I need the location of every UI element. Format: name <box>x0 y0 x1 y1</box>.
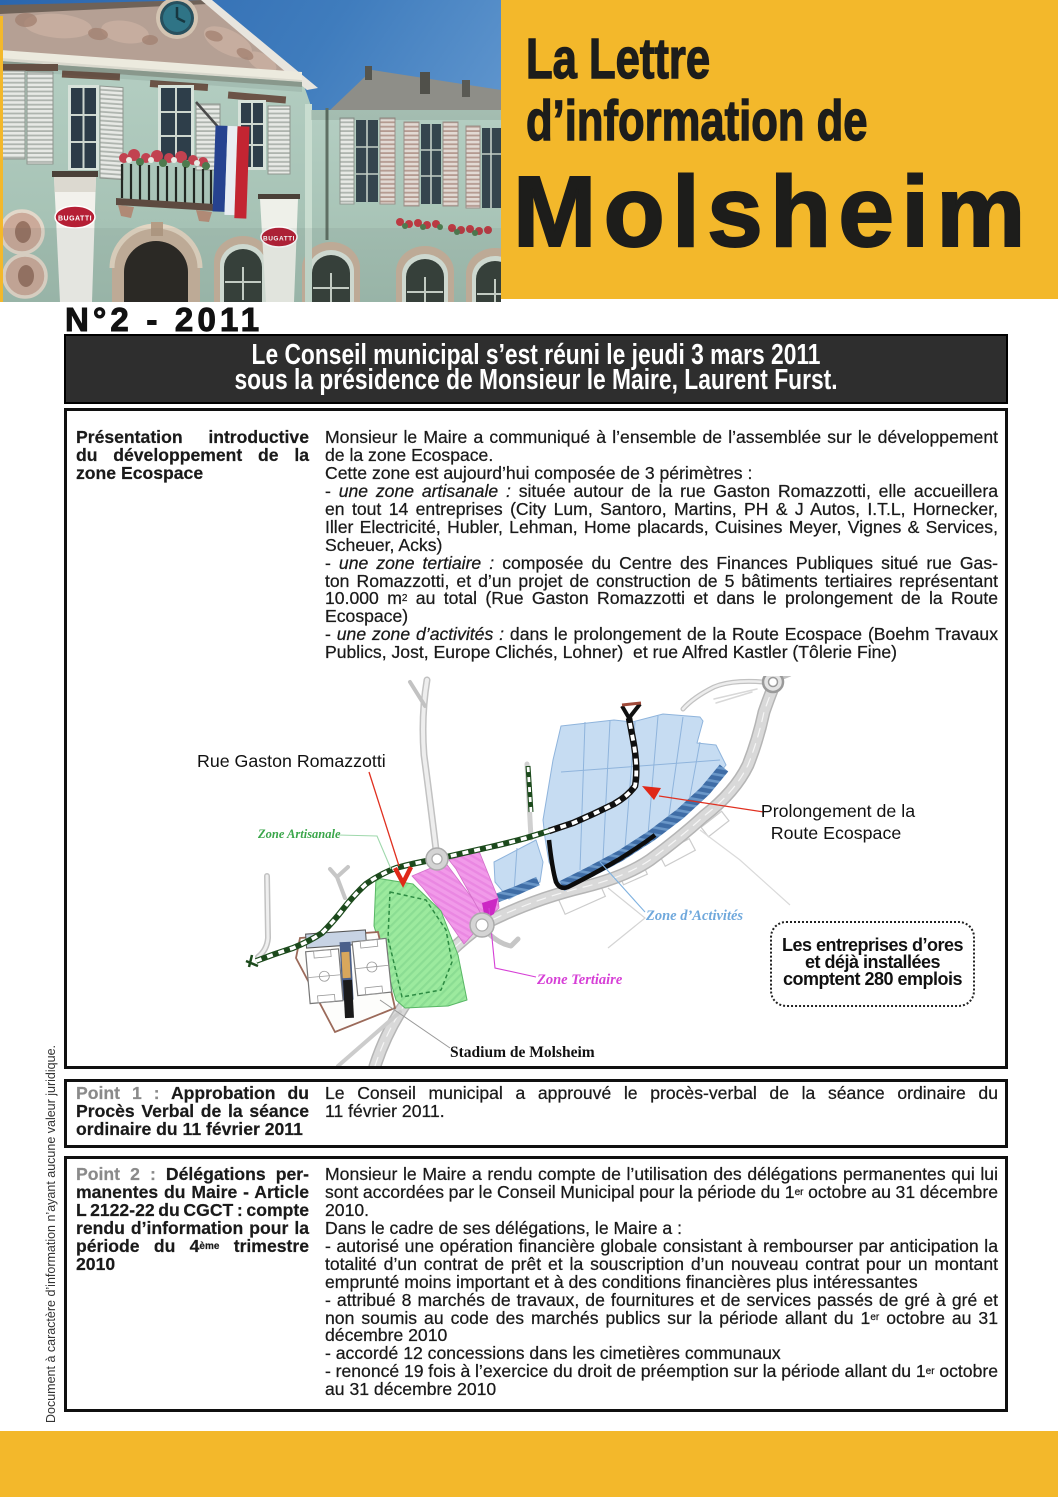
svg-text:Stadium de Molsheim: Stadium de Molsheim <box>450 1044 595 1061</box>
svg-text:BUGATTI: BUGATTI <box>58 216 92 223</box>
svg-text:Prolongement de la: Prolongement de la <box>761 801 915 821</box>
svg-text:Rue Gaston Romazzotti: Rue Gaston Romazzotti <box>197 751 386 771</box>
svg-text:Zone Artisanale: Zone Artisanale <box>257 827 341 841</box>
svg-text:Zone d’Activités: Zone d’Activités <box>645 908 743 924</box>
svg-text:Route Ecospace: Route Ecospace <box>771 823 902 843</box>
svg-text:Zone Tertiaire: Zone Tertiaire <box>536 972 623 988</box>
